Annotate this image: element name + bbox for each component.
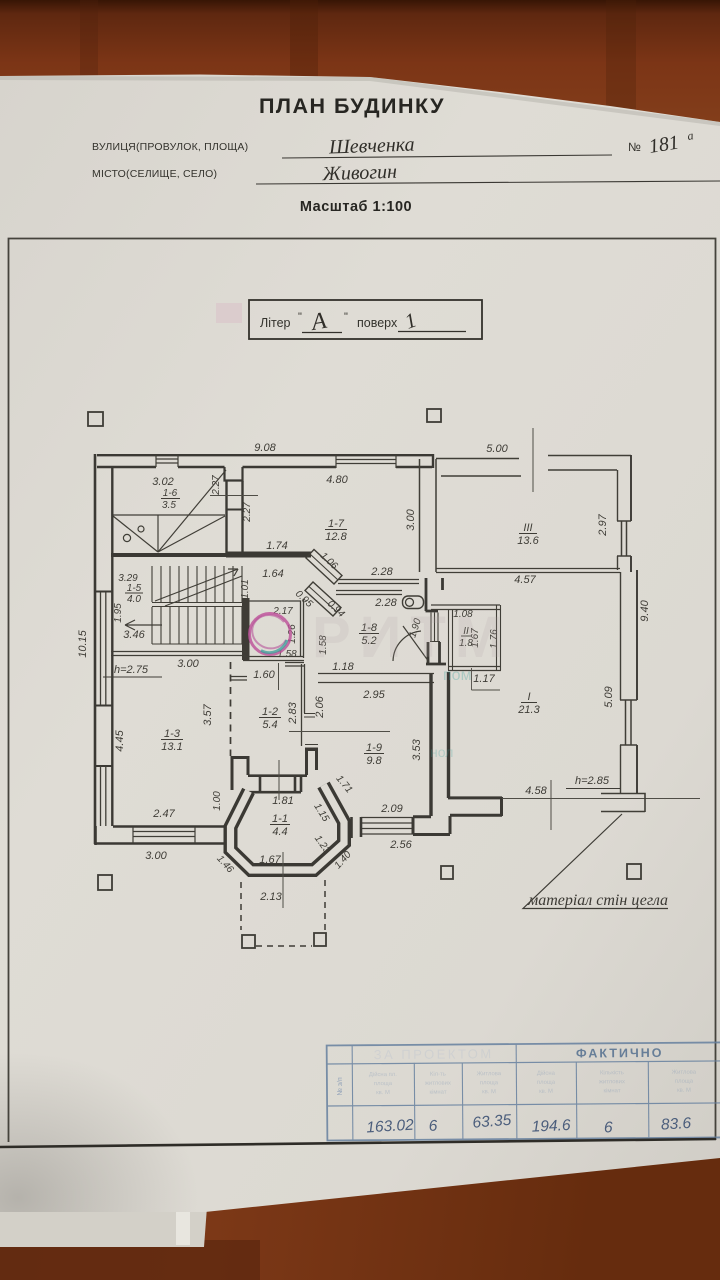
svg-text:6: 6 <box>428 1117 438 1135</box>
svg-text:1-5: 1-5 <box>127 583 142 594</box>
svg-text:ЗА ПРОЕКТОМ: ЗА ПРОЕКТОМ <box>374 1046 494 1062</box>
svg-text:3.57: 3.57 <box>202 703 214 725</box>
svg-text:2.83: 2.83 <box>287 701 299 724</box>
svg-text:2.28: 2.28 <box>370 566 393 578</box>
svg-text:": " <box>298 311 302 323</box>
svg-text:1.95: 1.95 <box>113 603 124 623</box>
svg-text:4.57: 4.57 <box>514 574 536 586</box>
svg-text:2.56: 2.56 <box>389 839 412 851</box>
svg-text:13.6: 13.6 <box>517 535 539 547</box>
svg-text:пом: пом <box>443 667 472 684</box>
svg-text:2.13: 2.13 <box>259 891 282 903</box>
svg-text:1-7: 1-7 <box>328 518 345 530</box>
svg-text:1-9: 1-9 <box>366 742 382 754</box>
svg-text:I: I <box>527 691 530 703</box>
svg-text:21.3: 21.3 <box>517 704 540 716</box>
svg-text:житлових: житлових <box>425 1081 451 1087</box>
svg-text:МІСТО(СЕЛИЩЕ, СЕЛО): МІСТО(СЕЛИЩЕ, СЕЛО) <box>92 168 217 180</box>
svg-text:1.17: 1.17 <box>473 673 495 685</box>
svg-text:кімнат: кімнат <box>429 1090 446 1096</box>
svg-text:1.60: 1.60 <box>253 669 275 681</box>
svg-text:житлових: житлових <box>599 1079 625 1085</box>
svg-text:III: III <box>523 522 532 534</box>
svg-text:4.0: 4.0 <box>127 594 141 605</box>
svg-text:3.00: 3.00 <box>145 850 167 862</box>
svg-text:кв. М: кв. М <box>482 1089 496 1095</box>
svg-text:1-6: 1-6 <box>163 488 178 499</box>
svg-text:5.09: 5.09 <box>603 686 615 707</box>
svg-text:РИТМ: РИТМ <box>312 605 512 670</box>
svg-text:5.00: 5.00 <box>486 443 508 455</box>
svg-text:": " <box>344 311 348 323</box>
svg-text:Літер: Літер <box>260 316 291 330</box>
svg-text:Кількість: Кількість <box>600 1070 624 1076</box>
svg-text:1-1: 1-1 <box>272 813 288 825</box>
svg-text:кв. М: кв. М <box>677 1088 691 1094</box>
svg-text:поверх: поверх <box>357 316 398 330</box>
svg-text:181: 181 <box>647 132 680 158</box>
svg-text:площа: площа <box>480 1080 499 1086</box>
svg-text:3.02: 3.02 <box>152 476 173 488</box>
svg-text:кв. М: кв. М <box>376 1090 390 1096</box>
svg-text:2.27: 2.27 <box>242 502 253 523</box>
svg-text:83.6: 83.6 <box>660 1115 692 1134</box>
svg-text:площа: площа <box>537 1080 556 1086</box>
svg-text:194.6: 194.6 <box>531 1117 571 1136</box>
svg-text:1.00: 1.00 <box>212 791 223 811</box>
svg-text:1-2: 1-2 <box>262 706 278 718</box>
svg-text:ВУЛИЦЯ(ПРОВУЛОК, ПЛОЩА): ВУЛИЦЯ(ПРОВУЛОК, ПЛОЩА) <box>92 141 248 153</box>
svg-text:3.53: 3.53 <box>411 738 423 760</box>
svg-text:13.1: 13.1 <box>161 741 182 753</box>
svg-text:2.97: 2.97 <box>597 513 609 536</box>
svg-text:Живогин: Живогин <box>321 161 397 186</box>
svg-text:3.46: 3.46 <box>123 629 145 641</box>
svg-text:4.45: 4.45 <box>114 729 126 751</box>
svg-text:5.4: 5.4 <box>262 719 277 731</box>
svg-text:2.27: 2.27 <box>211 475 222 496</box>
svg-text:4.4: 4.4 <box>272 826 287 838</box>
svg-text:кв. М: кв. М <box>539 1089 553 1095</box>
svg-text:кімнат: кімнат <box>603 1088 620 1094</box>
svg-text:2.47: 2.47 <box>152 808 175 820</box>
svg-text:№: № <box>628 140 641 154</box>
svg-text:3.00: 3.00 <box>177 658 199 670</box>
svg-text:h=2.85: h=2.85 <box>575 775 610 787</box>
svg-text:4.58: 4.58 <box>525 785 547 797</box>
svg-text:2.06: 2.06 <box>314 695 326 718</box>
svg-text:1.67: 1.67 <box>259 854 281 866</box>
svg-text:Кіл-ть: Кіл-ть <box>430 1072 446 1078</box>
svg-text:10.15: 10.15 <box>77 629 89 657</box>
svg-text:1-3: 1-3 <box>164 728 181 740</box>
svg-text:№ з/п: № з/п <box>337 1077 344 1096</box>
svg-text:9.40: 9.40 <box>639 599 651 621</box>
svg-text:1.01: 1.01 <box>240 579 251 598</box>
svg-text:матеріал стін цегла: матеріал стін цегла <box>527 892 668 909</box>
svg-text:3.00: 3.00 <box>405 508 417 530</box>
svg-text:4.80: 4.80 <box>326 474 348 486</box>
svg-text:1.81: 1.81 <box>272 795 293 807</box>
svg-text:3.5: 3.5 <box>162 500 176 511</box>
svg-text:2.09: 2.09 <box>380 803 402 815</box>
svg-text:площа: площа <box>675 1079 694 1085</box>
svg-text:ПЛАН БУДИНКУ: ПЛАН БУДИНКУ <box>259 94 445 118</box>
svg-text:6: 6 <box>604 1119 613 1136</box>
svg-text:63.35: 63.35 <box>472 1112 512 1132</box>
svg-text:1.74: 1.74 <box>266 540 287 552</box>
svg-text:Дійсна пл.: Дійсна пл. <box>369 1071 397 1078</box>
svg-text:2.95: 2.95 <box>362 689 385 701</box>
svg-text:Дійсна: Дійсна <box>537 1070 556 1077</box>
svg-text:площа: площа <box>374 1081 393 1087</box>
svg-text:9.8: 9.8 <box>366 755 382 767</box>
svg-text:163.02: 163.02 <box>366 1117 415 1137</box>
svg-text:1.64: 1.64 <box>262 568 283 580</box>
svg-text:9.08: 9.08 <box>254 442 276 454</box>
svg-text:ФАКТИЧНО: ФАКТИЧНО <box>576 1046 664 1061</box>
svg-text:Шевченка: Шевченка <box>328 134 415 159</box>
svg-text:Житлова: Житлова <box>477 1071 502 1077</box>
svg-text:нол: нол <box>430 744 453 760</box>
svg-text:Масштаб 1:100: Масштаб 1:100 <box>300 199 412 215</box>
svg-text:12.8: 12.8 <box>325 531 347 543</box>
svg-text:h=2.75: h=2.75 <box>114 664 149 676</box>
svg-text:Житлова: Житлова <box>672 1070 697 1076</box>
